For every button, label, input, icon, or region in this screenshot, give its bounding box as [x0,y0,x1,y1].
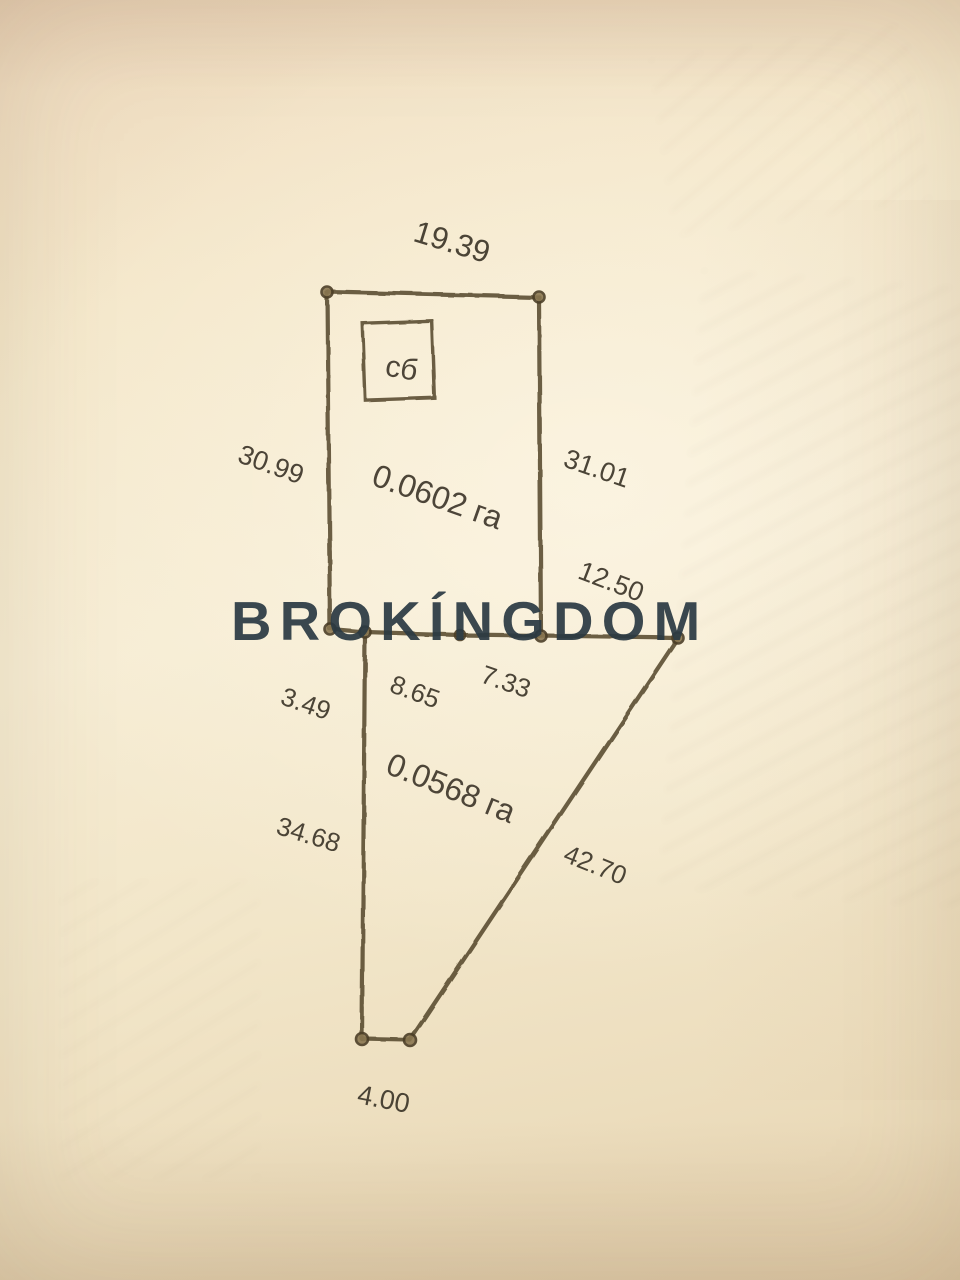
brokingdom-watermark: BROKÍNGDOM [231,594,708,649]
boundary-upper-left [327,292,330,629]
dimension-label-upper-left: 30.99 [234,439,308,490]
dimension-label-shared-b: 7.33 [477,659,535,704]
dimension-label-shared-a: 8.65 [386,669,444,715]
survey-sketch-photo: сб 19.39 30.99 31.01 12.50 3.49 8.65 7.3… [0,0,960,1280]
area-label-lower-parcel: 0.0568 га [382,746,521,830]
boundary-diagonal [410,638,678,1040]
boundary-lower-left [362,634,365,1039]
dimension-label-bottom: 4.00 [355,1079,412,1118]
dimension-label-lower-left: 34.68 [273,811,344,859]
area-label-upper-parcel: 0.0602 га [368,457,508,536]
dimension-label-left-offset: 3.49 [277,681,335,726]
vertex-marker [356,1033,368,1045]
vertex-marker [322,287,333,298]
boundary-top [327,292,539,297]
building-mark-label: сб [383,350,420,388]
vertex-marker [534,292,545,303]
dimension-label-top: 19.39 [410,214,494,270]
dimension-label-upper-right: 31.01 [560,443,634,493]
boundary-upper-right [539,297,541,636]
vertex-marker [404,1034,416,1046]
dimension-label-diagonal: 42.70 [560,839,632,891]
